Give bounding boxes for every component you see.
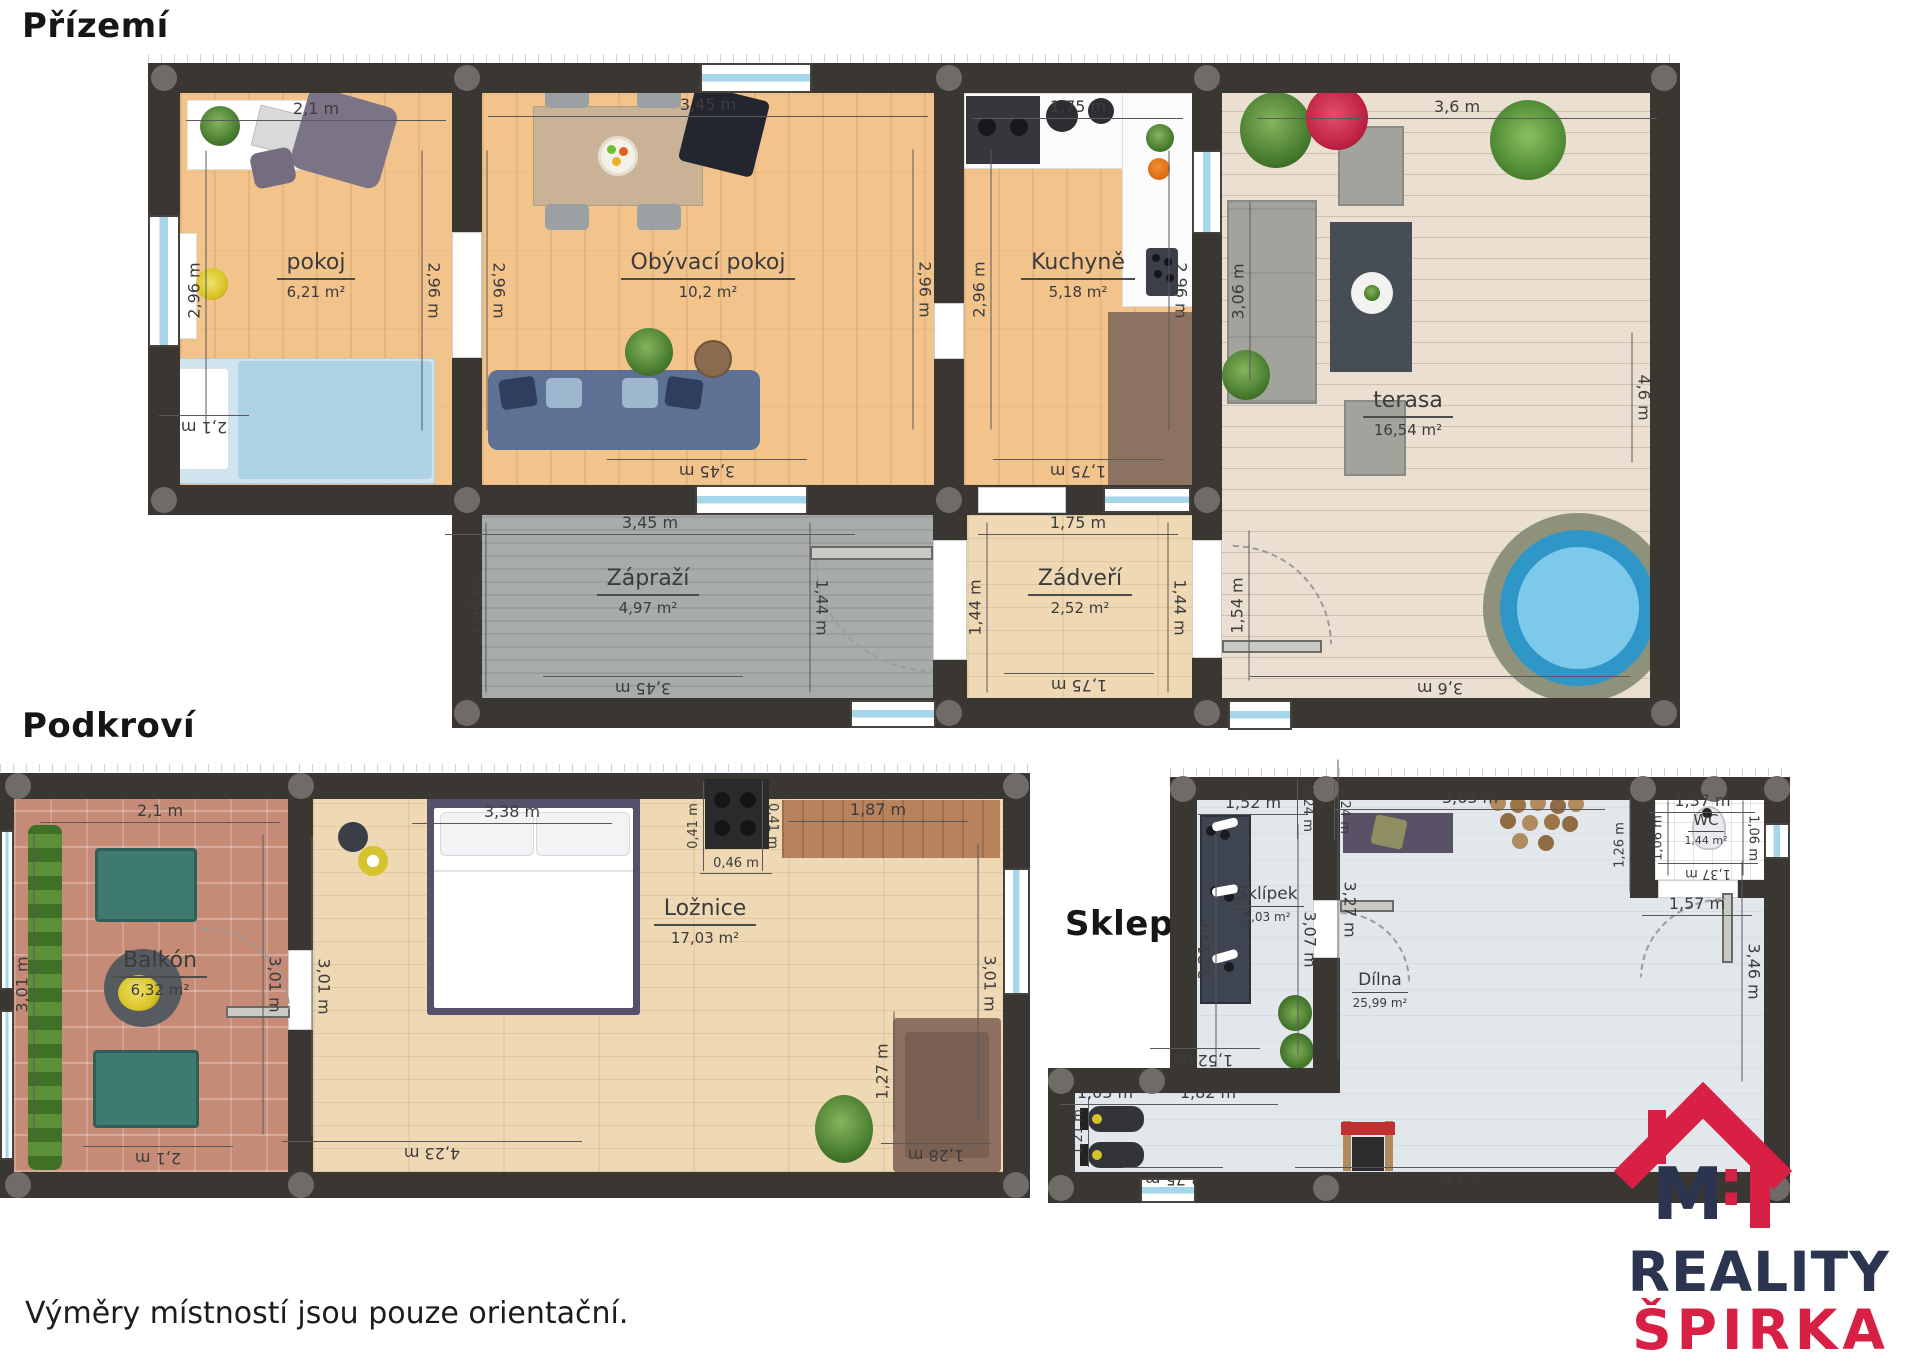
dim-label: 1,75 m [1004,673,1154,694]
attic-title-text: Podkroví [22,706,195,746]
dim-label: 3,06 m [1230,202,1251,382]
room-label-wc: WC1,44 m² [1656,810,1756,847]
dim-label: 1,28 m [881,1143,991,1164]
dim-label: 0,46 m [700,856,772,874]
dim-label: 4,6 m [1632,333,1653,463]
dim-label: 1,75 m [978,514,1178,535]
room-name: Zádveří [1028,566,1132,596]
dim-label: 3,01 m [263,835,284,1135]
room-area: 1,44 m² [1656,834,1756,847]
plant-icon [625,328,673,376]
ruler-ticks [1170,768,1790,776]
dim-label: 3,21 m [1196,837,1217,1067]
lamp-icon [338,822,368,852]
door [933,540,967,660]
door [1192,540,1222,658]
post [1048,1175,1074,1201]
post [1194,487,1220,513]
room-area: 4,97 m² [548,599,748,617]
dim-label: 2,96 m [186,151,207,431]
post [936,700,962,726]
door [978,487,1066,513]
dim-label: 3,27 m [1338,760,1359,1060]
dim-label: 5,3 m [1295,1167,1625,1188]
dim-label: 3,38 m [412,803,612,824]
dim-label: 1,21 m [1071,1097,1089,1167]
room-label-balkon: Balkón6,32 m² [60,948,260,999]
dim-label: 2,75 m [1123,1167,1223,1188]
chair [637,204,681,230]
room-area: 17,03 m² [605,929,805,947]
stove [705,779,769,849]
room-name: Kuchyně [1021,250,1135,280]
dim-label: 3,45 m [488,96,928,117]
room-area: 2,52 m² [980,599,1180,617]
door [288,950,313,1030]
garden-sofa [95,848,197,922]
dim-label: 3,45 m [607,459,807,480]
window-icon [1192,150,1222,234]
dim-label: 1,44 m [967,523,988,693]
post [936,65,962,91]
dim-label: 2,96 m [913,150,934,430]
post [454,700,480,726]
window-icon [0,1010,14,1160]
room-name: WC [1688,811,1723,832]
post [5,1172,31,1198]
side-table [694,340,732,378]
wall [1650,63,1680,728]
wall [452,698,1680,728]
post [1170,776,1196,802]
post [288,773,314,799]
attic-title: Podkroví [22,706,195,746]
door [452,232,482,358]
basement-title-text: Sklep [1065,904,1174,944]
dim-label: 3,01 m [14,835,35,1135]
room-label-terasa: terasa16,54 m² [1308,388,1508,439]
room-label-obyvaci: Obývací pokoj10,2 m² [558,250,858,301]
dim-label: 2,96 m [422,151,443,431]
dim-label: 3,45 m [445,514,855,535]
dim-label: 3,45 m [543,676,743,697]
dim-label: 1,27 m [874,1012,895,1132]
room-area: 25,99 m² [1305,996,1455,1010]
window-icon [850,700,936,728]
pumpkin-icon [1148,158,1170,180]
wall [0,1172,1030,1198]
dim-label: 1,52 m [1150,1048,1260,1069]
dim-label: 1,44 m [466,523,487,693]
window-icon [1103,487,1191,513]
dim-label: 1,75 m [993,459,1163,480]
room-area: 6,21 m² [216,283,416,301]
window-icon [1228,700,1292,730]
room-label-zaprazi: Zápraží4,97 m² [548,566,748,617]
sofa-pillow [664,376,704,411]
agency-logo: M : REALITY ŠPIRKA [1590,1080,1890,1370]
dim-label: 1,44 m [1168,523,1189,693]
garden-sofa [93,1050,199,1128]
window-icon [148,215,180,347]
post [454,487,480,513]
window-icon [700,63,812,93]
dim-label: 1,75 m [973,98,1183,119]
post [1003,773,1029,799]
dim-label: 2,96 m [1169,151,1190,431]
dim-label: 1,54 m [1229,531,1250,681]
dim-label: 2,96 m [487,151,508,431]
armchair-cushion [905,1032,989,1158]
post [936,487,962,513]
room-area: 6,32 m² [60,981,260,999]
window-icon [695,485,808,515]
dim-label: 1,26 m [1613,798,1631,893]
dim-label: 2,1 m [186,100,446,121]
fruit-icon [607,145,616,154]
barbell-bar [1341,1122,1395,1135]
logo-colon: : [1718,1150,1744,1216]
dim-label: 2,1 m [83,1146,233,1167]
wall [0,773,1030,799]
post [151,487,177,513]
room-name: Balkón [113,948,207,978]
room-name: Zápraží [597,566,700,596]
room-label-zadveri: Zádveří2,52 m² [980,566,1180,617]
dim-label: 2,1 m [40,802,280,823]
dim-label: 3,6 m [1250,676,1630,697]
post [1651,700,1677,726]
dim-label: 2,1 m [159,415,249,436]
logo-line2: ŠPIRKA [1590,1298,1890,1362]
bike-pedal-icon [1092,1150,1102,1160]
room-name: Dílna [1352,970,1408,993]
sofa-pillow [546,378,582,408]
plant-icon [815,1095,873,1163]
room-name: Ložnice [654,896,757,926]
room-label-kuchyne: Kuchyně5,18 m² [978,250,1178,301]
ground-floor-title: Přízemí [22,6,169,46]
post [1003,1172,1029,1198]
logo-wall [1750,1164,1770,1228]
disclaimer-text: Výměry místností jsou pouze orientační. [25,1296,628,1331]
dim-label: 3,63 m [1335,789,1605,810]
room-name: terasa [1363,388,1453,418]
weight-bench [1352,1137,1384,1171]
dim-label: 3,6 m [1257,98,1657,119]
dim-label: 1,87 m [788,801,968,822]
dim-label: 1,57 m [1642,895,1752,916]
bed-blanket [238,361,432,479]
logo-line1: REALITY [1590,1240,1890,1304]
wall [1170,777,1197,1093]
dim-label: 3,46 m [1742,862,1763,1082]
hot-tub-water [1517,547,1639,669]
post [1651,65,1677,91]
room-name: pokoj [277,250,356,280]
plant-icon [1146,124,1174,152]
lamp-icon [358,846,388,876]
dim-label: 1,82 m [1138,1084,1278,1105]
dim-label: 4,23 m [282,1141,582,1162]
dim-label: 1,44 m [810,523,831,693]
logo-monogram: M [1652,1158,1724,1230]
post [454,65,480,91]
bed-fold-line [434,870,633,872]
post [1194,700,1220,726]
post [151,65,177,91]
sofa-pillow [622,378,658,408]
room-name: Obývací pokoj [621,250,796,280]
basement-title: Sklep [1065,904,1174,944]
ground-floor-title-text: Přízemí [22,6,169,46]
ruler-ticks [0,764,1030,772]
fruit-bowl [598,136,638,176]
dim-label: 3,01 m [312,837,333,1137]
window-icon [1003,868,1030,995]
window-icon [1764,823,1790,859]
bike-pedal-icon [1092,1114,1102,1124]
chair [545,204,589,230]
wall [934,63,964,515]
room-area: 16,54 m² [1308,421,1508,439]
burner-icon [978,118,996,136]
dim-label: 3,07 m [1298,825,1319,1055]
dim-label: 2,96 m [971,150,992,430]
stove-burners-icon [714,792,730,808]
room-area: 5,18 m² [978,283,1178,301]
room-name: Sklípek [1230,884,1303,907]
post [288,1172,314,1198]
post [1764,776,1790,802]
dim-label: 3,01 m [978,844,999,1124]
post [1194,65,1220,91]
room-label-pokoj: pokoj6,21 m² [216,250,416,301]
dim-label: 1,52 m [1198,794,1308,815]
storage-box [1370,814,1408,850]
post [5,773,31,799]
room-label-loznice: Ložnice17,03 m² [605,896,805,947]
wall [148,63,1680,93]
plant-icon [1364,285,1380,301]
door [934,303,964,359]
ruler-ticks [148,54,1680,62]
room-area: 10,2 m² [558,283,858,301]
room-label-dilna: Dílna25,99 m² [1305,970,1455,1010]
floorplan-page: Přízemí Podkroví Sklep [0,0,1920,1371]
